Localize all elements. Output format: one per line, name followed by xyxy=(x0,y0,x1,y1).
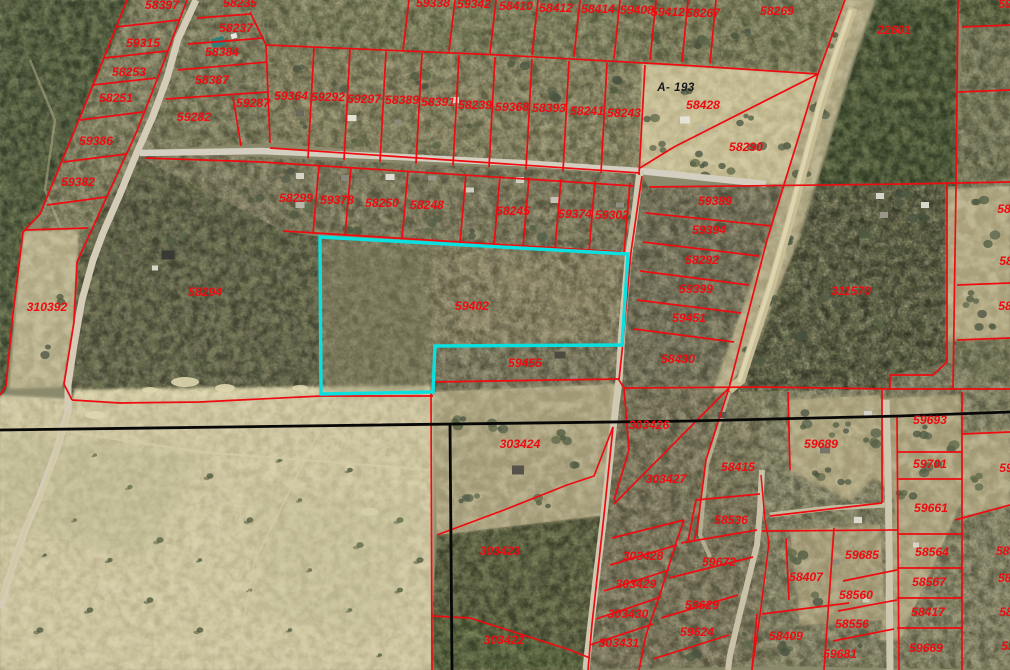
svg-text:58: 58 xyxy=(999,254,1010,268)
svg-text:58243: 58243 xyxy=(607,106,641,120)
svg-text:58536: 58536 xyxy=(714,513,748,527)
svg-text:583: 583 xyxy=(996,544,1010,558)
svg-text:58430: 58430 xyxy=(661,352,695,366)
svg-text:59389: 59389 xyxy=(698,194,732,208)
svg-text:59302: 59302 xyxy=(595,208,629,222)
svg-text:59: 59 xyxy=(999,461,1010,475)
svg-text:310392: 310392 xyxy=(27,300,68,314)
svg-text:59338: 59338 xyxy=(416,0,450,10)
svg-text:22601: 22601 xyxy=(876,23,911,37)
svg-text:303428: 303428 xyxy=(623,549,664,563)
svg-text:303427: 303427 xyxy=(646,472,688,486)
svg-text:58: 58 xyxy=(998,299,1010,313)
svg-text:58235: 58235 xyxy=(223,0,257,10)
svg-text:59451: 59451 xyxy=(672,311,706,325)
svg-text:59368: 59368 xyxy=(495,100,529,114)
svg-text:58237: 58237 xyxy=(219,21,254,35)
svg-text:59661: 59661 xyxy=(914,501,948,515)
svg-text:59315: 59315 xyxy=(126,36,160,50)
svg-text:58: 58 xyxy=(997,202,1010,216)
svg-text:58245: 58245 xyxy=(496,204,530,218)
svg-text:303430: 303430 xyxy=(608,607,649,621)
svg-text:59382: 59382 xyxy=(61,175,95,189)
svg-text:58292: 58292 xyxy=(685,253,719,267)
svg-text:58250: 58250 xyxy=(365,196,399,210)
svg-text:303429: 303429 xyxy=(616,577,657,591)
svg-text:59701: 59701 xyxy=(913,457,947,471)
svg-text:58391: 58391 xyxy=(421,95,455,109)
svg-text:59399: 59399 xyxy=(679,282,713,296)
svg-text:58269: 58269 xyxy=(760,4,794,18)
svg-text:58414: 58414 xyxy=(581,2,615,16)
svg-text:58393: 58393 xyxy=(532,101,566,115)
svg-text:58567: 58567 xyxy=(912,575,947,589)
svg-text:58251: 58251 xyxy=(99,91,133,105)
svg-text:59282: 59282 xyxy=(177,110,211,124)
svg-text:59412: 59412 xyxy=(651,5,685,19)
svg-text:58: 58 xyxy=(999,605,1010,619)
svg-text:59629: 59629 xyxy=(685,598,719,612)
svg-text:59287: 59287 xyxy=(236,96,271,110)
svg-text:303426: 303426 xyxy=(629,418,670,432)
svg-text:303423: 303423 xyxy=(480,544,521,558)
svg-text:59669: 59669 xyxy=(909,641,943,655)
svg-text:59685: 59685 xyxy=(845,548,879,562)
svg-text:311570: 311570 xyxy=(831,284,871,298)
svg-text:59681: 59681 xyxy=(823,647,857,661)
svg-text:58412: 58412 xyxy=(539,1,573,15)
svg-text:59374: 59374 xyxy=(558,207,592,221)
svg-text:58415: 58415 xyxy=(721,460,755,474)
svg-text:58248: 58248 xyxy=(410,198,444,212)
svg-text:59689: 59689 xyxy=(804,437,838,451)
svg-text:59292: 59292 xyxy=(311,90,345,104)
svg-text:58564: 58564 xyxy=(915,545,949,559)
svg-text:586: 586 xyxy=(998,571,1010,585)
svg-text:58384: 58384 xyxy=(205,45,239,59)
svg-text:59394: 59394 xyxy=(692,223,726,237)
svg-text:59402: 59402 xyxy=(455,299,489,313)
svg-text:A- 193: A- 193 xyxy=(656,82,695,94)
svg-text:58241: 58241 xyxy=(570,104,604,118)
svg-text:58294: 58294 xyxy=(188,285,222,299)
svg-text:303424: 303424 xyxy=(500,437,541,451)
svg-text:59342: 59342 xyxy=(457,0,491,11)
svg-text:58417: 58417 xyxy=(911,605,946,619)
svg-text:58253: 58253 xyxy=(112,65,146,79)
svg-text:58428: 58428 xyxy=(686,98,720,112)
svg-text:303431: 303431 xyxy=(599,636,640,650)
svg-text:58397: 58397 xyxy=(145,0,180,12)
svg-text:59386: 59386 xyxy=(79,134,113,148)
svg-text:59364: 59364 xyxy=(274,89,308,103)
svg-text:59408: 59408 xyxy=(620,3,654,17)
svg-text:58267: 58267 xyxy=(686,6,721,20)
svg-text:59: 59 xyxy=(998,0,1010,11)
svg-text:58299: 58299 xyxy=(279,191,313,205)
svg-text:58410: 58410 xyxy=(499,0,533,13)
svg-text:58409: 58409 xyxy=(769,629,803,643)
svg-text:59624: 59624 xyxy=(680,625,714,639)
svg-text:59378: 59378 xyxy=(320,193,354,207)
svg-text:58239: 58239 xyxy=(458,98,492,112)
svg-text:59: 59 xyxy=(1001,639,1010,653)
svg-text:58556: 58556 xyxy=(835,617,869,631)
svg-text:59693: 59693 xyxy=(913,413,947,427)
svg-text:303422: 303422 xyxy=(484,633,525,647)
svg-text:59455: 59455 xyxy=(508,356,542,370)
svg-text:58407: 58407 xyxy=(789,570,824,584)
svg-text:59672: 59672 xyxy=(702,555,736,569)
svg-text:58387: 58387 xyxy=(195,73,230,87)
svg-text:58560: 58560 xyxy=(839,588,873,602)
svg-text:58290: 58290 xyxy=(729,140,763,154)
svg-text:58389: 58389 xyxy=(385,93,419,107)
svg-text:59297: 59297 xyxy=(347,92,382,106)
